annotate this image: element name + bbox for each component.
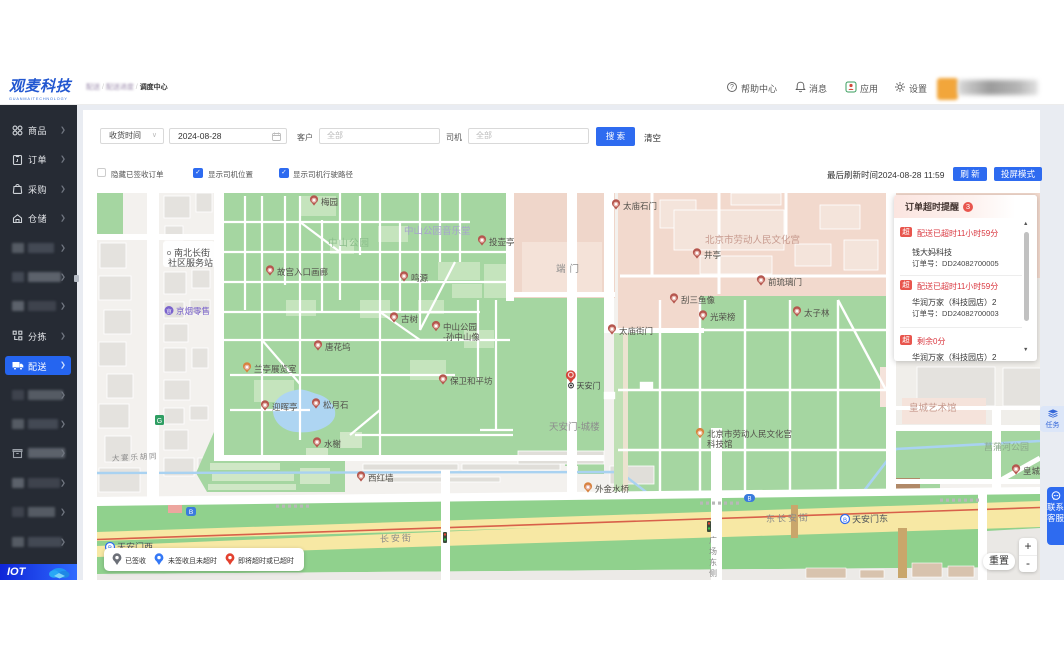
svg-text:唐花坞: 唐花坞 [325,342,351,352]
svg-text:皇城艺术馆: 皇城艺术馆 [909,402,957,414]
svg-text:迎晖亭: 迎晖亭 [272,402,298,412]
svg-text:中山公园音乐堂: 中山公园音乐堂 [404,225,471,237]
svg-text:井亭: 井亭 [704,250,721,260]
svg-text:天安门-城楼: 天安门-城楼 [549,421,600,433]
svg-text:古树: 古树 [401,314,419,324]
svg-text:东长安街: 东长安街 [766,511,810,524]
svg-text:保卫和平坊: 保卫和平坊 [450,376,493,386]
svg-text:南北长街: 南北长街 [174,247,210,258]
svg-text:科技馆: 科技馆 [707,439,733,449]
svg-text:兰亭展览室: 兰亭展览室 [254,364,297,374]
svg-text:场: 场 [709,547,717,556]
svg-text:故宫入口画廊: 故宫入口画廊 [277,267,329,277]
svg-text:中山公园: 中山公园 [328,237,370,249]
svg-text:长安街: 长安街 [380,532,413,544]
svg-text:梅园: 梅园 [321,197,338,207]
svg-text:太庙街门: 太庙街门 [619,326,653,336]
svg-text:水榭: 水榭 [324,439,342,449]
svg-text:太庙石门: 太庙石门 [623,201,657,211]
svg-text:菖蒲河公园: 菖蒲河公园 [984,441,1029,452]
svg-text:天安门: 天安门 [577,381,601,391]
svg-text:鸣源: 鸣源 [411,273,429,283]
svg-text:京烟零售: 京烟零售 [176,306,210,316]
svg-text:社区服务站: 社区服务站 [168,257,213,268]
svg-text:太子林: 太子林 [804,308,830,318]
svg-text:北京市劳动人民文化宫: 北京市劳动人民文化宫 [705,234,800,246]
svg-text:东: 东 [709,557,717,567]
svg-text:外金水桥: 外金水桥 [595,484,630,494]
svg-text:京: 京 [166,307,172,315]
svg-text:前琉璃门: 前琉璃门 [768,277,802,287]
svg-text:天安门东: 天安门东 [852,513,888,525]
svg-text:光荣榜: 光荣榜 [710,312,736,322]
svg-text:投壶亭: 投壶亭 [489,237,515,247]
svg-text:北京市劳动人民文化宫: 北京市劳动人民文化宫 [707,429,792,439]
svg-text:中山公园: 中山公园 [443,322,477,332]
svg-text:-孙中山像: -孙中山像 [443,332,480,342]
svg-text:松月石: 松月石 [323,400,349,410]
svg-text:皇城墙遗址: 皇城墙遗址 [1023,466,1040,476]
svg-text:刮三鱼像: 刮三鱼像 [681,295,716,305]
svg-text:端门: 端门 [556,263,583,275]
svg-text:G: G [157,418,162,425]
svg-text:西红墙: 西红墙 [368,473,394,483]
svg-text:侧: 侧 [709,568,717,578]
svg-text:B: B [747,497,751,503]
svg-text:B: B [189,509,193,516]
svg-text:广: 广 [709,535,717,545]
svg-text:B: B [843,518,847,524]
